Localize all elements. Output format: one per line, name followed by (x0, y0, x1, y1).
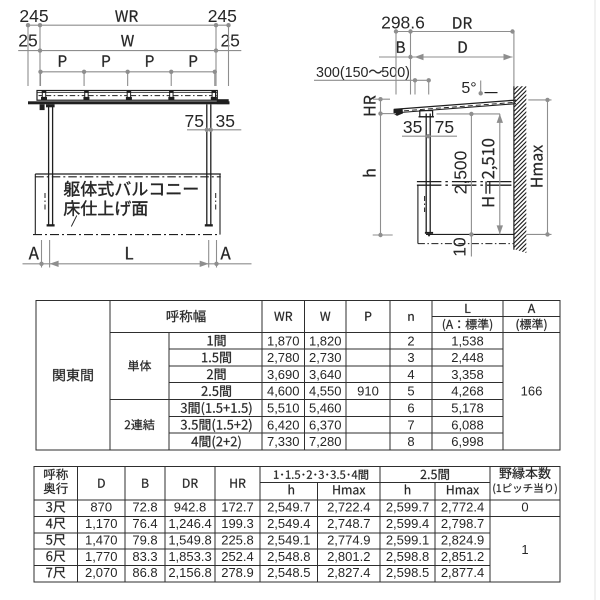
svg-text:2,851.2: 2,851.2 (441, 549, 484, 564)
svg-text:5°: 5° (461, 80, 476, 97)
svg-text:3: 3 (407, 350, 414, 365)
svg-text:5,178: 5,178 (451, 401, 484, 416)
svg-text:245: 245 (208, 6, 237, 26)
svg-text:35: 35 (216, 111, 235, 131)
svg-text:7: 7 (407, 417, 414, 432)
svg-text:2,548.5: 2,548.5 (267, 565, 310, 580)
svg-text:942.8: 942.8 (174, 500, 207, 515)
svg-text:2,877.4: 2,877.4 (441, 565, 484, 580)
svg-text:1,170: 1,170 (85, 516, 118, 531)
svg-text:2,070: 2,070 (85, 565, 118, 580)
svg-text:83.3: 83.3 (132, 549, 157, 564)
svg-text:1,870: 1,870 (267, 333, 300, 348)
svg-text:2,827.4: 2,827.4 (327, 565, 370, 580)
svg-text:76.4: 76.4 (132, 516, 157, 531)
svg-text:300(150: 300(150 (316, 65, 369, 81)
svg-text:6,370: 6,370 (309, 417, 342, 432)
svg-text:1,820: 1,820 (309, 333, 342, 348)
svg-text:0: 0 (521, 500, 528, 515)
svg-text:5,460: 5,460 (309, 401, 342, 416)
svg-text:172.7: 172.7 (221, 500, 254, 515)
svg-text:2,772.4: 2,772.4 (441, 500, 484, 515)
svg-text:225.8: 225.8 (221, 532, 254, 547)
svg-text:2,780: 2,780 (267, 350, 300, 365)
svg-text:1,549.8: 1,549.8 (168, 532, 211, 547)
svg-text:2,730: 2,730 (309, 350, 342, 365)
svg-text:910: 910 (357, 384, 379, 399)
svg-text:2,156.8: 2,156.8 (168, 565, 211, 580)
svg-text:870: 870 (90, 500, 112, 515)
svg-text:2,549.4: 2,549.4 (267, 516, 310, 531)
svg-text:2,798.7: 2,798.7 (441, 516, 484, 531)
svg-text:3,358: 3,358 (451, 367, 484, 382)
svg-text:75: 75 (185, 111, 204, 131)
svg-text:75: 75 (435, 117, 454, 137)
svg-text:2,448: 2,448 (451, 350, 484, 365)
svg-text:2,748.7: 2,748.7 (327, 516, 370, 531)
svg-text:298.6: 298.6 (381, 13, 425, 33)
svg-text:2,549.1: 2,549.1 (267, 532, 310, 547)
svg-text:252.4: 252.4 (221, 549, 254, 564)
svg-text:2,549.7: 2,549.7 (267, 500, 310, 515)
svg-text:2,824.9: 2,824.9 (441, 532, 484, 547)
svg-text:4,600: 4,600 (267, 384, 300, 399)
svg-text:6: 6 (407, 401, 414, 416)
svg-text:2: 2 (407, 333, 414, 348)
svg-text:2,599.1: 2,599.1 (386, 532, 429, 547)
svg-text:86.8: 86.8 (132, 565, 157, 580)
svg-text:4,550: 4,550 (309, 384, 342, 399)
svg-text:6,420: 6,420 (267, 417, 300, 432)
svg-text:2,548.8: 2,548.8 (267, 549, 310, 564)
svg-text:245: 245 (19, 6, 48, 26)
svg-text:7,330: 7,330 (267, 434, 300, 449)
svg-text:2,500: 2,500 (451, 150, 471, 194)
svg-text:1,853.3: 1,853.3 (168, 549, 211, 564)
svg-text:5: 5 (407, 384, 414, 399)
svg-text:4: 4 (407, 367, 414, 382)
svg-text:6,998: 6,998 (451, 434, 484, 449)
svg-text:1,770: 1,770 (85, 549, 118, 564)
svg-text:4,268: 4,268 (451, 384, 484, 399)
svg-text:2,722.4: 2,722.4 (327, 500, 370, 515)
svg-text:3,690: 3,690 (267, 367, 300, 382)
svg-text:2,599.7: 2,599.7 (386, 500, 429, 515)
svg-text:35: 35 (403, 117, 422, 137)
svg-text:5,510: 5,510 (267, 401, 300, 416)
svg-text:10: 10 (450, 237, 470, 257)
svg-text:2,599.4: 2,599.4 (386, 516, 429, 531)
svg-text:278.9: 278.9 (221, 565, 254, 580)
svg-text:8: 8 (407, 434, 414, 449)
svg-text:2,598.8: 2,598.8 (386, 549, 429, 564)
svg-text:3,640: 3,640 (309, 367, 342, 382)
svg-text:1,470: 1,470 (85, 532, 118, 547)
svg-text:199.3: 199.3 (221, 516, 254, 531)
svg-text:72.8: 72.8 (132, 500, 157, 515)
svg-text:1: 1 (521, 542, 528, 557)
svg-text:79.8: 79.8 (132, 532, 157, 547)
svg-text:166: 166 (521, 384, 543, 399)
svg-text:2,774.9: 2,774.9 (327, 532, 370, 547)
svg-text:2,598.5: 2,598.5 (386, 565, 429, 580)
svg-text:25: 25 (220, 30, 239, 50)
svg-text:1,246.4: 1,246.4 (168, 516, 211, 531)
svg-text:1,538: 1,538 (451, 333, 484, 348)
svg-text:2,801.2: 2,801.2 (327, 549, 370, 564)
svg-text:7,280: 7,280 (309, 434, 342, 449)
svg-text:6,088: 6,088 (451, 417, 484, 432)
